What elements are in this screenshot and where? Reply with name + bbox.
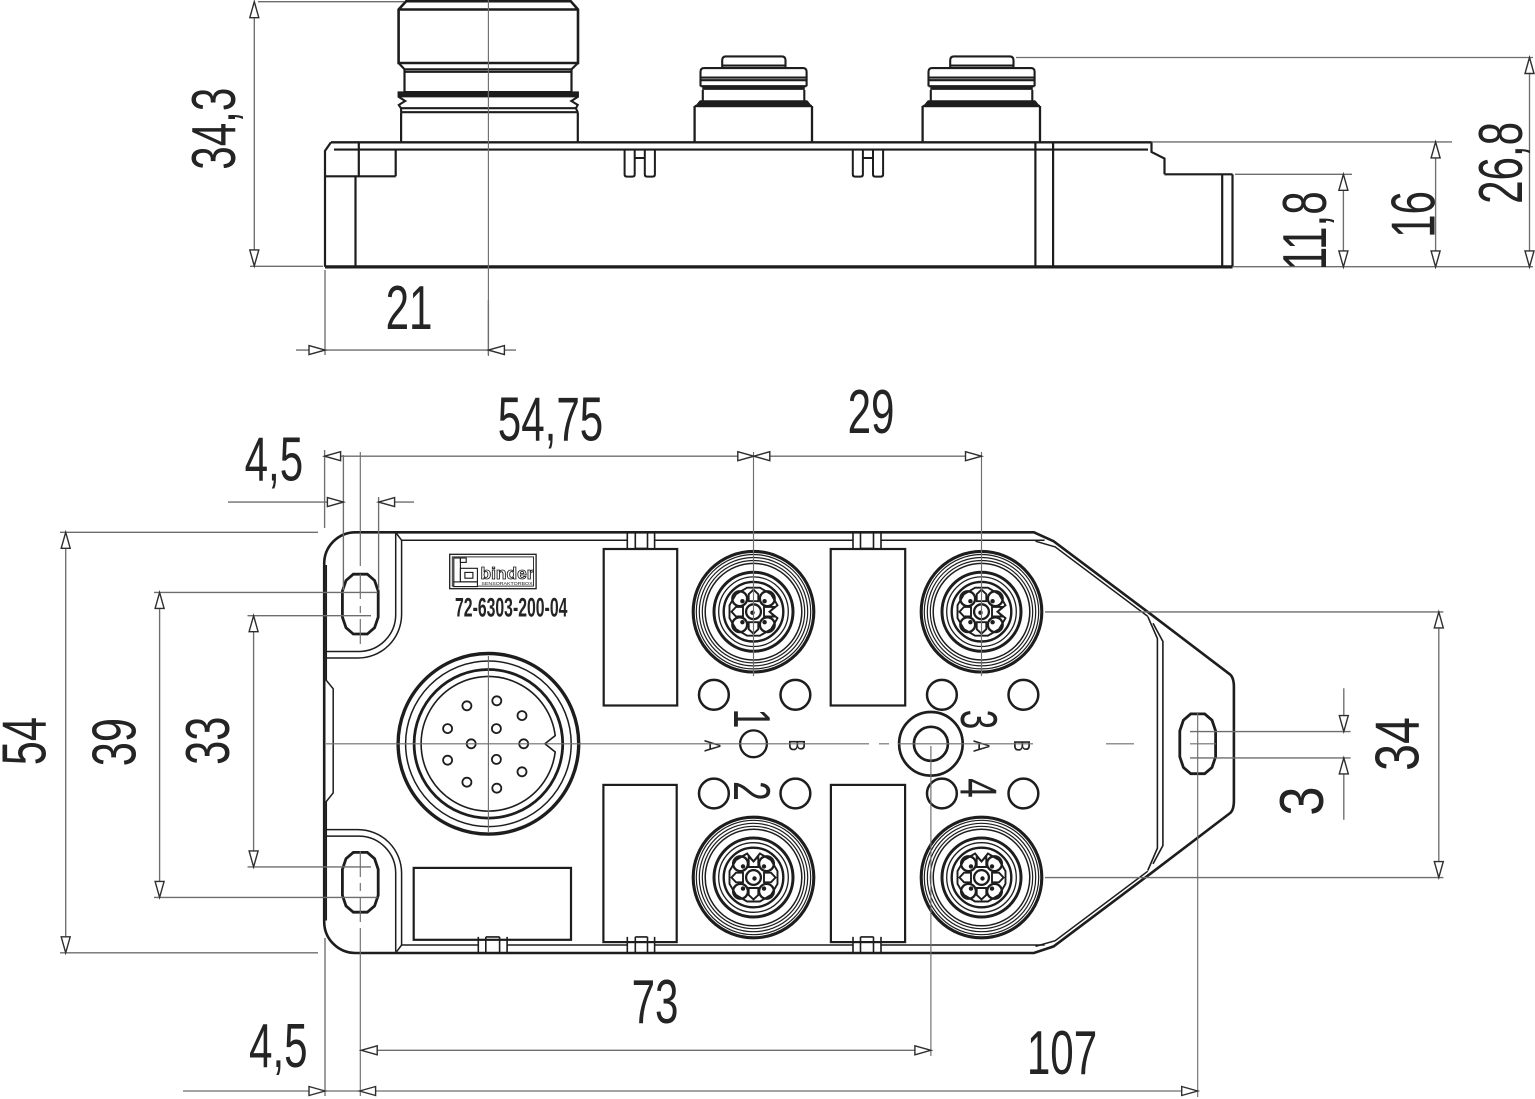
svg-text:4,5: 4,5 bbox=[245, 425, 304, 494]
svg-text:39: 39 bbox=[81, 718, 149, 766]
svg-text:SENSORAKTORBOX: SENSORAKTORBOX bbox=[481, 581, 533, 587]
svg-text:33: 33 bbox=[174, 717, 242, 765]
svg-text:72-6303-200-04: 72-6303-200-04 bbox=[455, 592, 568, 623]
svg-text:3: 3 bbox=[1268, 786, 1337, 815]
svg-text:29: 29 bbox=[848, 378, 895, 447]
svg-text:107: 107 bbox=[1027, 1019, 1097, 1088]
svg-text:54,75: 54,75 bbox=[498, 386, 603, 455]
svg-text:2: 2 bbox=[722, 781, 779, 801]
svg-text:A: A bbox=[968, 740, 994, 752]
svg-text:1: 1 bbox=[722, 709, 779, 729]
svg-text:34,3: 34,3 bbox=[180, 88, 249, 170]
svg-text:73: 73 bbox=[632, 968, 679, 1037]
svg-text:B: B bbox=[1008, 740, 1034, 752]
svg-text:21: 21 bbox=[386, 274, 433, 343]
svg-text:4,5: 4,5 bbox=[249, 1012, 308, 1081]
svg-text:A: A bbox=[699, 740, 725, 752]
svg-text:11,8: 11,8 bbox=[1271, 191, 1340, 270]
svg-text:4: 4 bbox=[949, 778, 1006, 798]
svg-text:3: 3 bbox=[949, 710, 1006, 730]
svg-text:16: 16 bbox=[1380, 191, 1449, 238]
svg-text:B: B bbox=[783, 739, 809, 751]
svg-text:34: 34 bbox=[1363, 717, 1432, 771]
svg-text:26,8: 26,8 bbox=[1467, 122, 1535, 204]
svg-text:binder: binder bbox=[481, 563, 534, 583]
svg-text:54: 54 bbox=[0, 717, 60, 765]
